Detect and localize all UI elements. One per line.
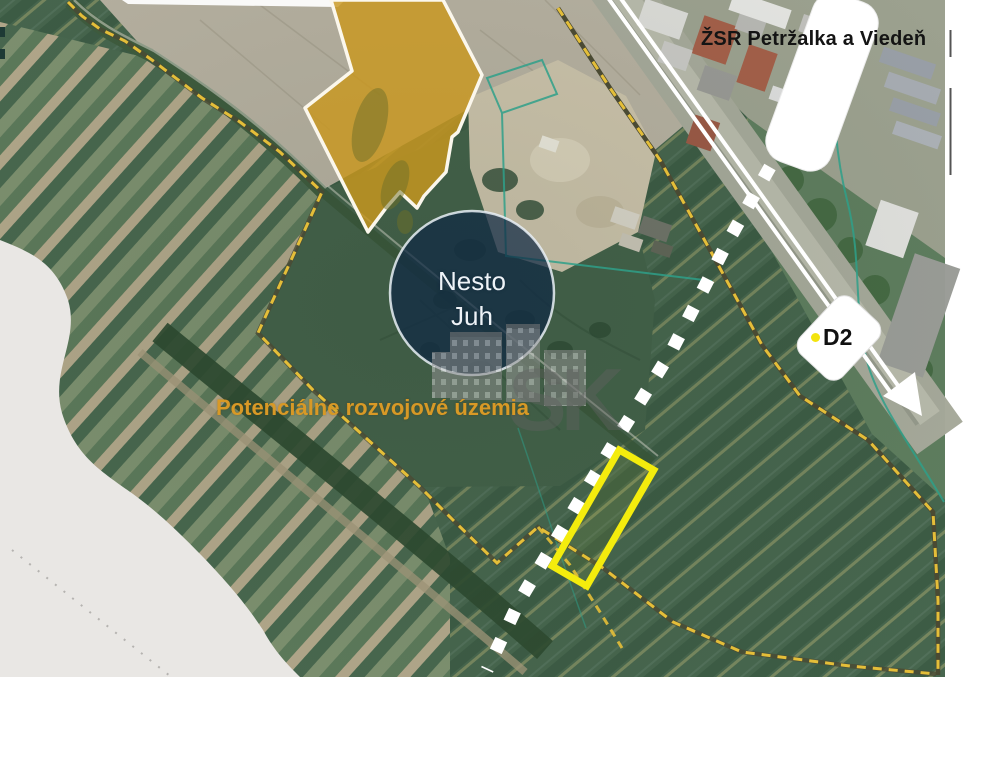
site-name-line1: Nesto — [392, 264, 552, 299]
edge-artifact — [0, 49, 5, 59]
map-screenshot: ŽSR Petržalka a Viedeň Nesto Juh SK Pote… — [0, 0, 1000, 768]
railway-corridor-label: ŽSR Petržalka a Viedeň — [701, 28, 926, 51]
site-name-line2: Juh — [392, 299, 552, 334]
edge-artifact — [0, 27, 5, 37]
site-name-label: Nesto Juh — [392, 264, 552, 334]
development-areas-label: Potenciálne rozvojové územia — [216, 395, 529, 421]
highway-sign-dot-icon — [811, 333, 820, 342]
highway-sign-text: D2 — [823, 324, 852, 351]
highway-sign-label: D2 — [811, 324, 852, 351]
aerial-map — [0, 0, 1000, 768]
